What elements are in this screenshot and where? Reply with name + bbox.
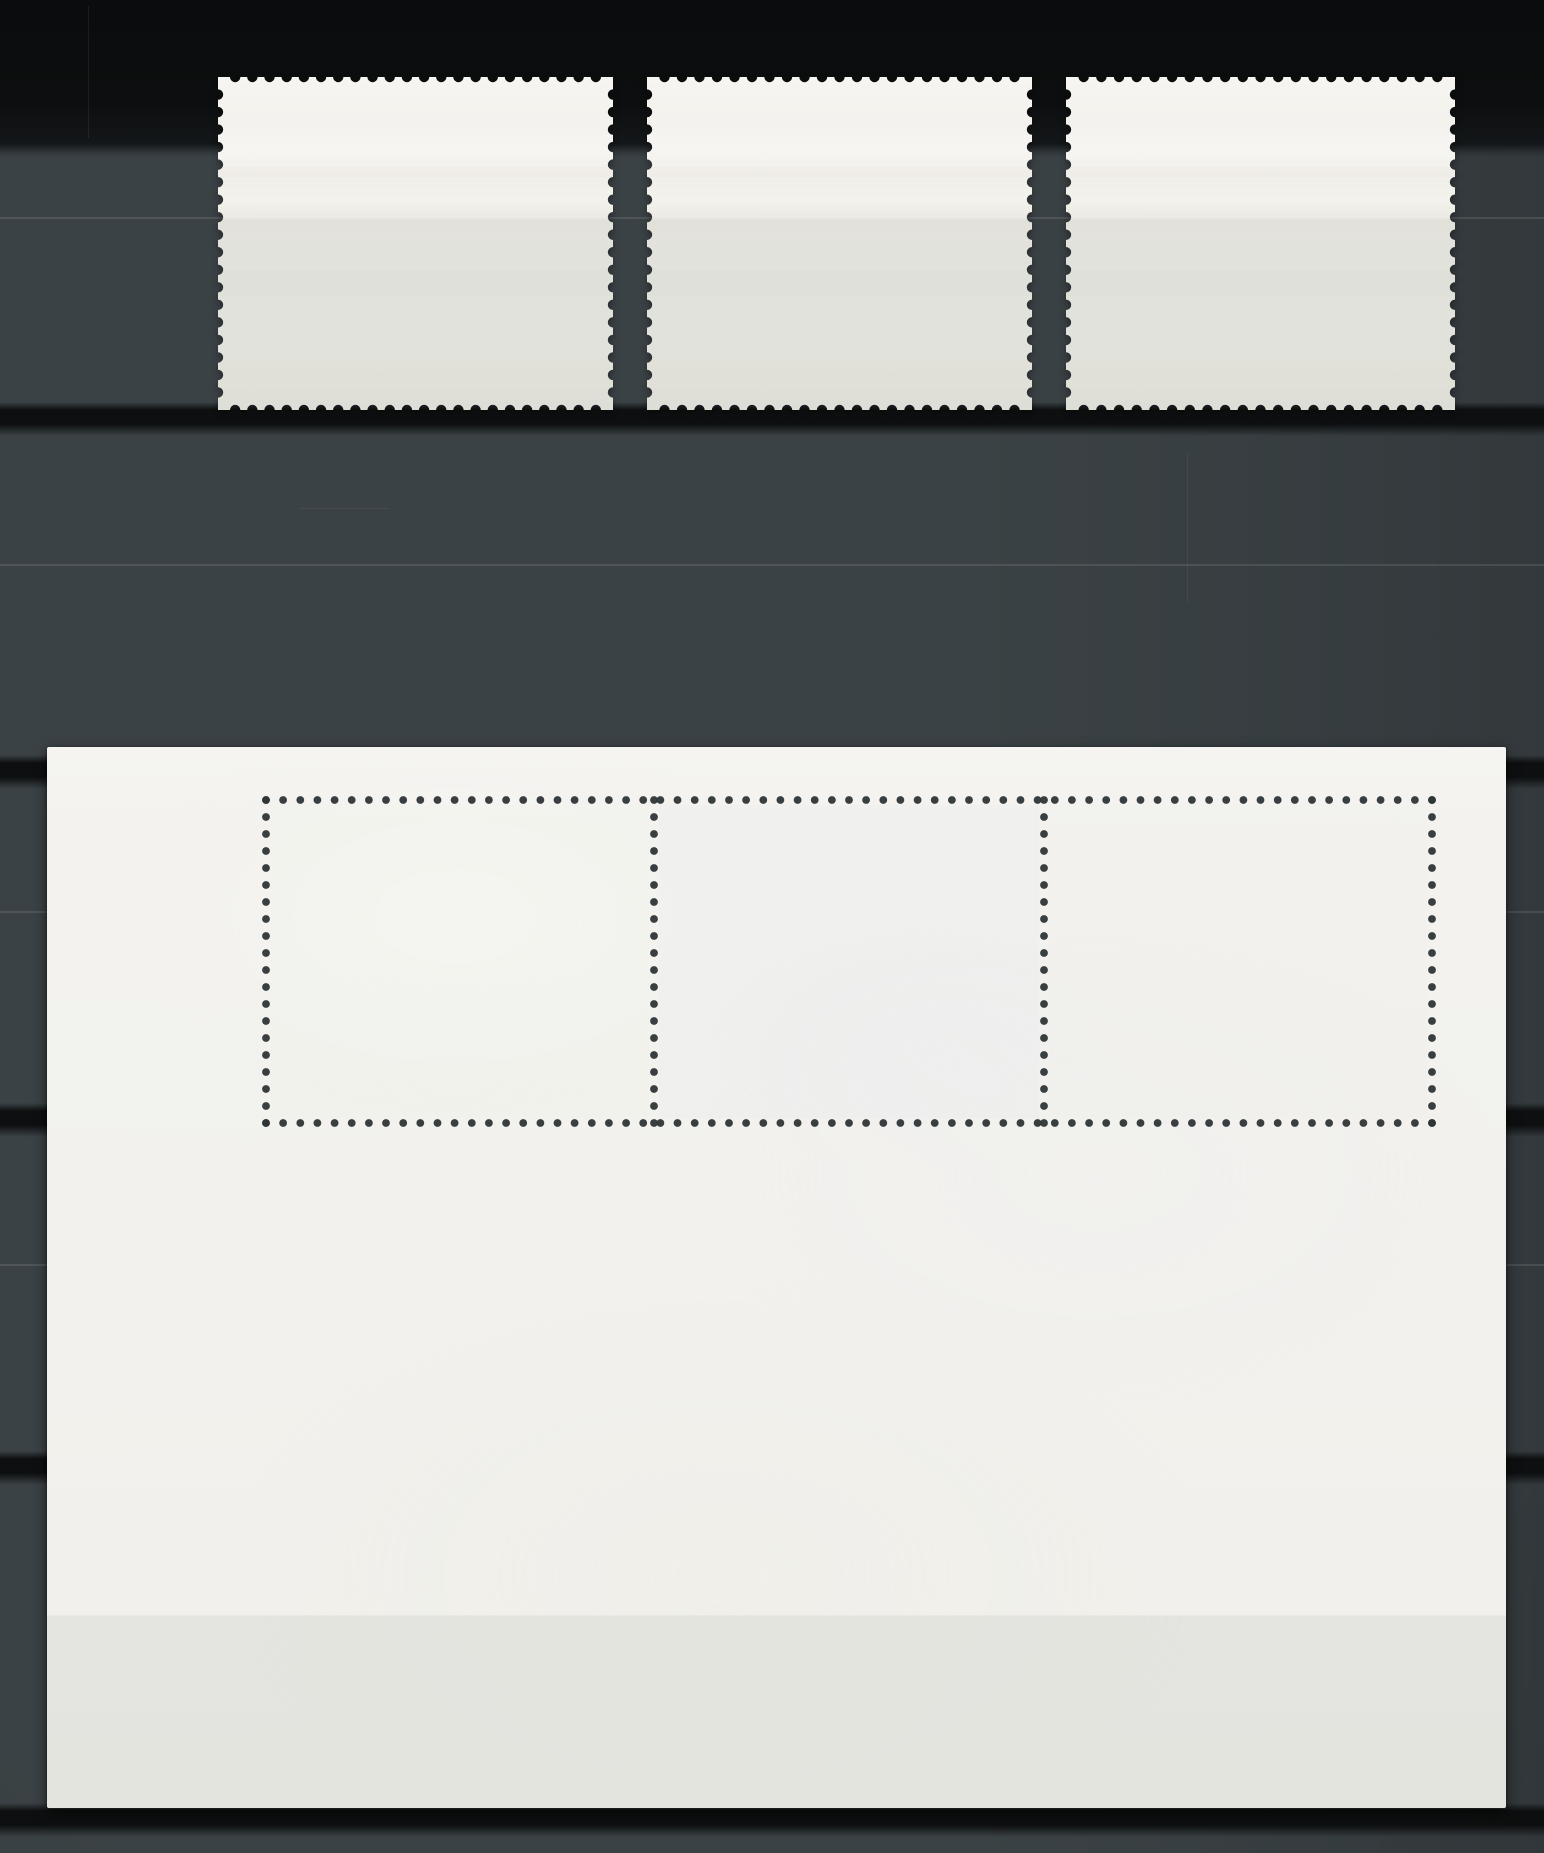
stamp-1 (218, 77, 613, 410)
sheet-paper-texture (47, 747, 1506, 1808)
stamp-back-paper (218, 77, 613, 410)
sheet-stamp-cell-3 (1049, 805, 1427, 1118)
sheet-stamp-cell-1 (271, 805, 649, 1118)
sheet-perforation-holes (47, 747, 1506, 1808)
strip-film-overlay-on-sheet (47, 1615, 1506, 1809)
stockbook-page-photo (0, 0, 1544, 1853)
stamp-3 (1066, 77, 1455, 410)
stamp-back-paper (1066, 77, 1455, 410)
sheet-stamp-cell-2 (659, 805, 1039, 1118)
stamp-2 (647, 77, 1032, 410)
stamp-back-paper (647, 77, 1032, 410)
souvenir-sheet (47, 747, 1506, 1808)
